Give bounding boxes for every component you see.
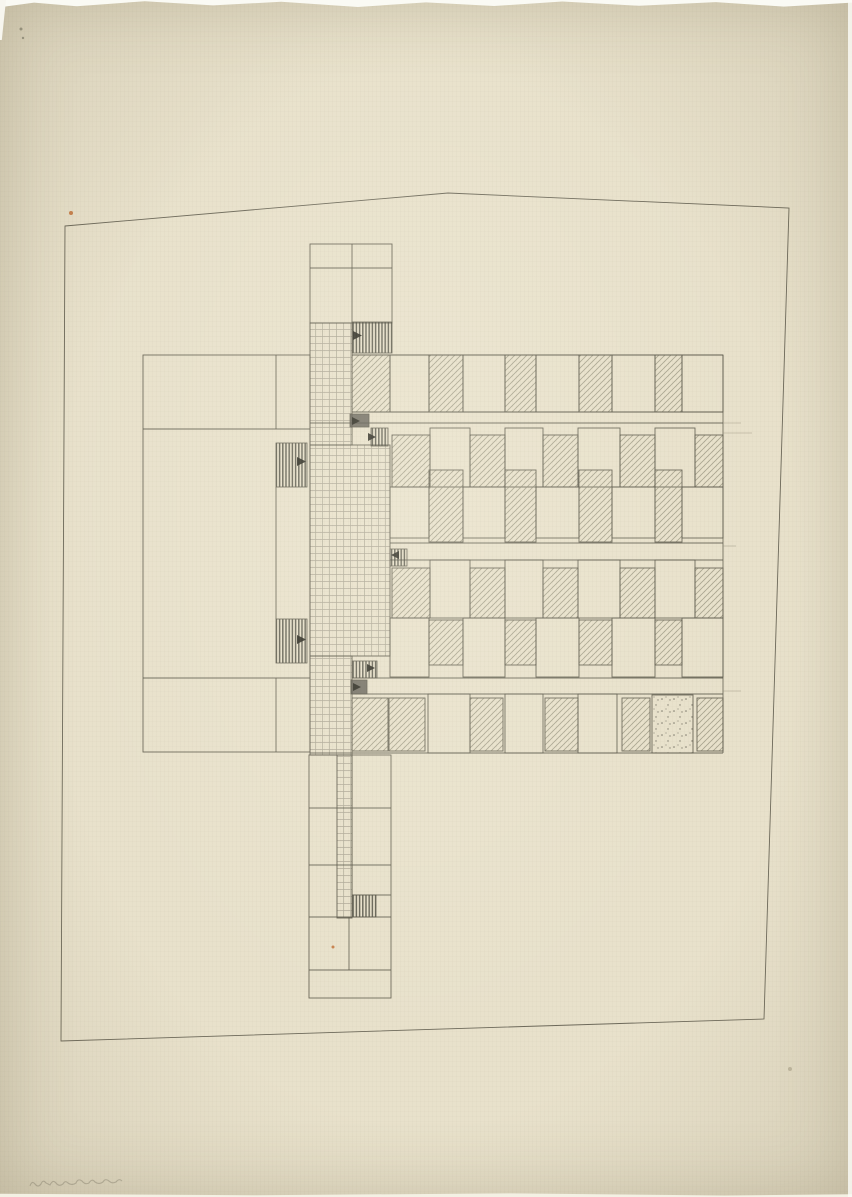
room-hatched — [352, 698, 388, 751]
paper-speck — [788, 1067, 792, 1071]
room-hatched — [620, 435, 655, 487]
spine-grid-upper — [310, 323, 352, 445]
room-plain — [428, 694, 470, 753]
room-hatched — [429, 620, 463, 665]
room-plain — [682, 355, 723, 412]
room-hatched — [697, 698, 723, 751]
room-plain — [578, 694, 617, 753]
room-hatched — [655, 470, 682, 542]
room-hatched — [695, 568, 723, 618]
room-hatched — [543, 435, 578, 487]
torn-paper-edge-right — [848, 0, 852, 1197]
room-hatched — [389, 698, 425, 751]
room-hatched — [505, 470, 536, 542]
handwritten-note — [30, 1180, 122, 1186]
room-hatched — [655, 620, 682, 665]
room-hatched — [429, 470, 463, 542]
spine-grid-lower — [310, 656, 352, 755]
room-hatched — [620, 568, 655, 618]
building-plan — [20, 28, 793, 1072]
room-plain — [655, 560, 695, 618]
room-plain — [612, 487, 655, 538]
room-hatched — [505, 355, 536, 412]
room-plain — [390, 355, 429, 412]
room-hatched — [579, 470, 612, 542]
junction-3-stripe-block — [352, 661, 377, 678]
spine-grid-middle — [310, 445, 390, 656]
room-hatched — [470, 568, 505, 618]
room-plain — [612, 355, 655, 412]
room-plain — [536, 487, 579, 538]
room-plain — [463, 618, 505, 677]
room-hatched — [655, 355, 682, 412]
left-wing — [143, 355, 310, 752]
room-hatched — [505, 620, 536, 665]
room-plain — [505, 560, 543, 618]
room-hatched — [392, 435, 430, 487]
room-hatched — [579, 355, 612, 412]
room-plain — [536, 618, 579, 677]
room-plain — [390, 487, 429, 538]
tail-ladder — [337, 755, 352, 918]
floor-plan-drawing — [0, 0, 852, 1197]
room-hatched — [470, 698, 503, 751]
paper-speck — [20, 28, 23, 31]
row-1 — [352, 355, 723, 412]
room-plain — [390, 618, 429, 677]
room-stippled — [652, 695, 693, 753]
room-hatched — [352, 355, 390, 412]
room-plain — [430, 560, 470, 618]
drawing-sheet — [0, 0, 852, 1197]
room-plain — [463, 487, 505, 538]
room-plain — [463, 355, 505, 412]
room-hatched — [392, 568, 430, 618]
left-wing-stripe-upper-block — [276, 443, 307, 487]
room-hatched — [470, 435, 505, 487]
room-plain — [682, 618, 723, 677]
row-4 — [392, 560, 723, 618]
room-hatched — [429, 355, 463, 412]
room-hatched — [579, 620, 612, 665]
room-plain — [578, 560, 620, 618]
row-5 — [390, 618, 723, 677]
row-6 — [352, 694, 723, 753]
tail-stripe-block — [352, 895, 376, 917]
paper-speck — [69, 211, 73, 215]
room-plain — [536, 355, 579, 412]
top-block — [310, 244, 392, 323]
room-plain — [682, 487, 723, 538]
handwritten-scribble — [30, 1180, 122, 1186]
room-hatched — [695, 435, 723, 487]
room-hatched — [545, 698, 578, 751]
room-plain — [612, 618, 655, 677]
paper-speck — [22, 37, 24, 39]
room-hatched — [622, 698, 650, 751]
room-plain — [505, 694, 543, 753]
room-hatched — [543, 568, 578, 618]
paper-speck — [332, 946, 335, 949]
